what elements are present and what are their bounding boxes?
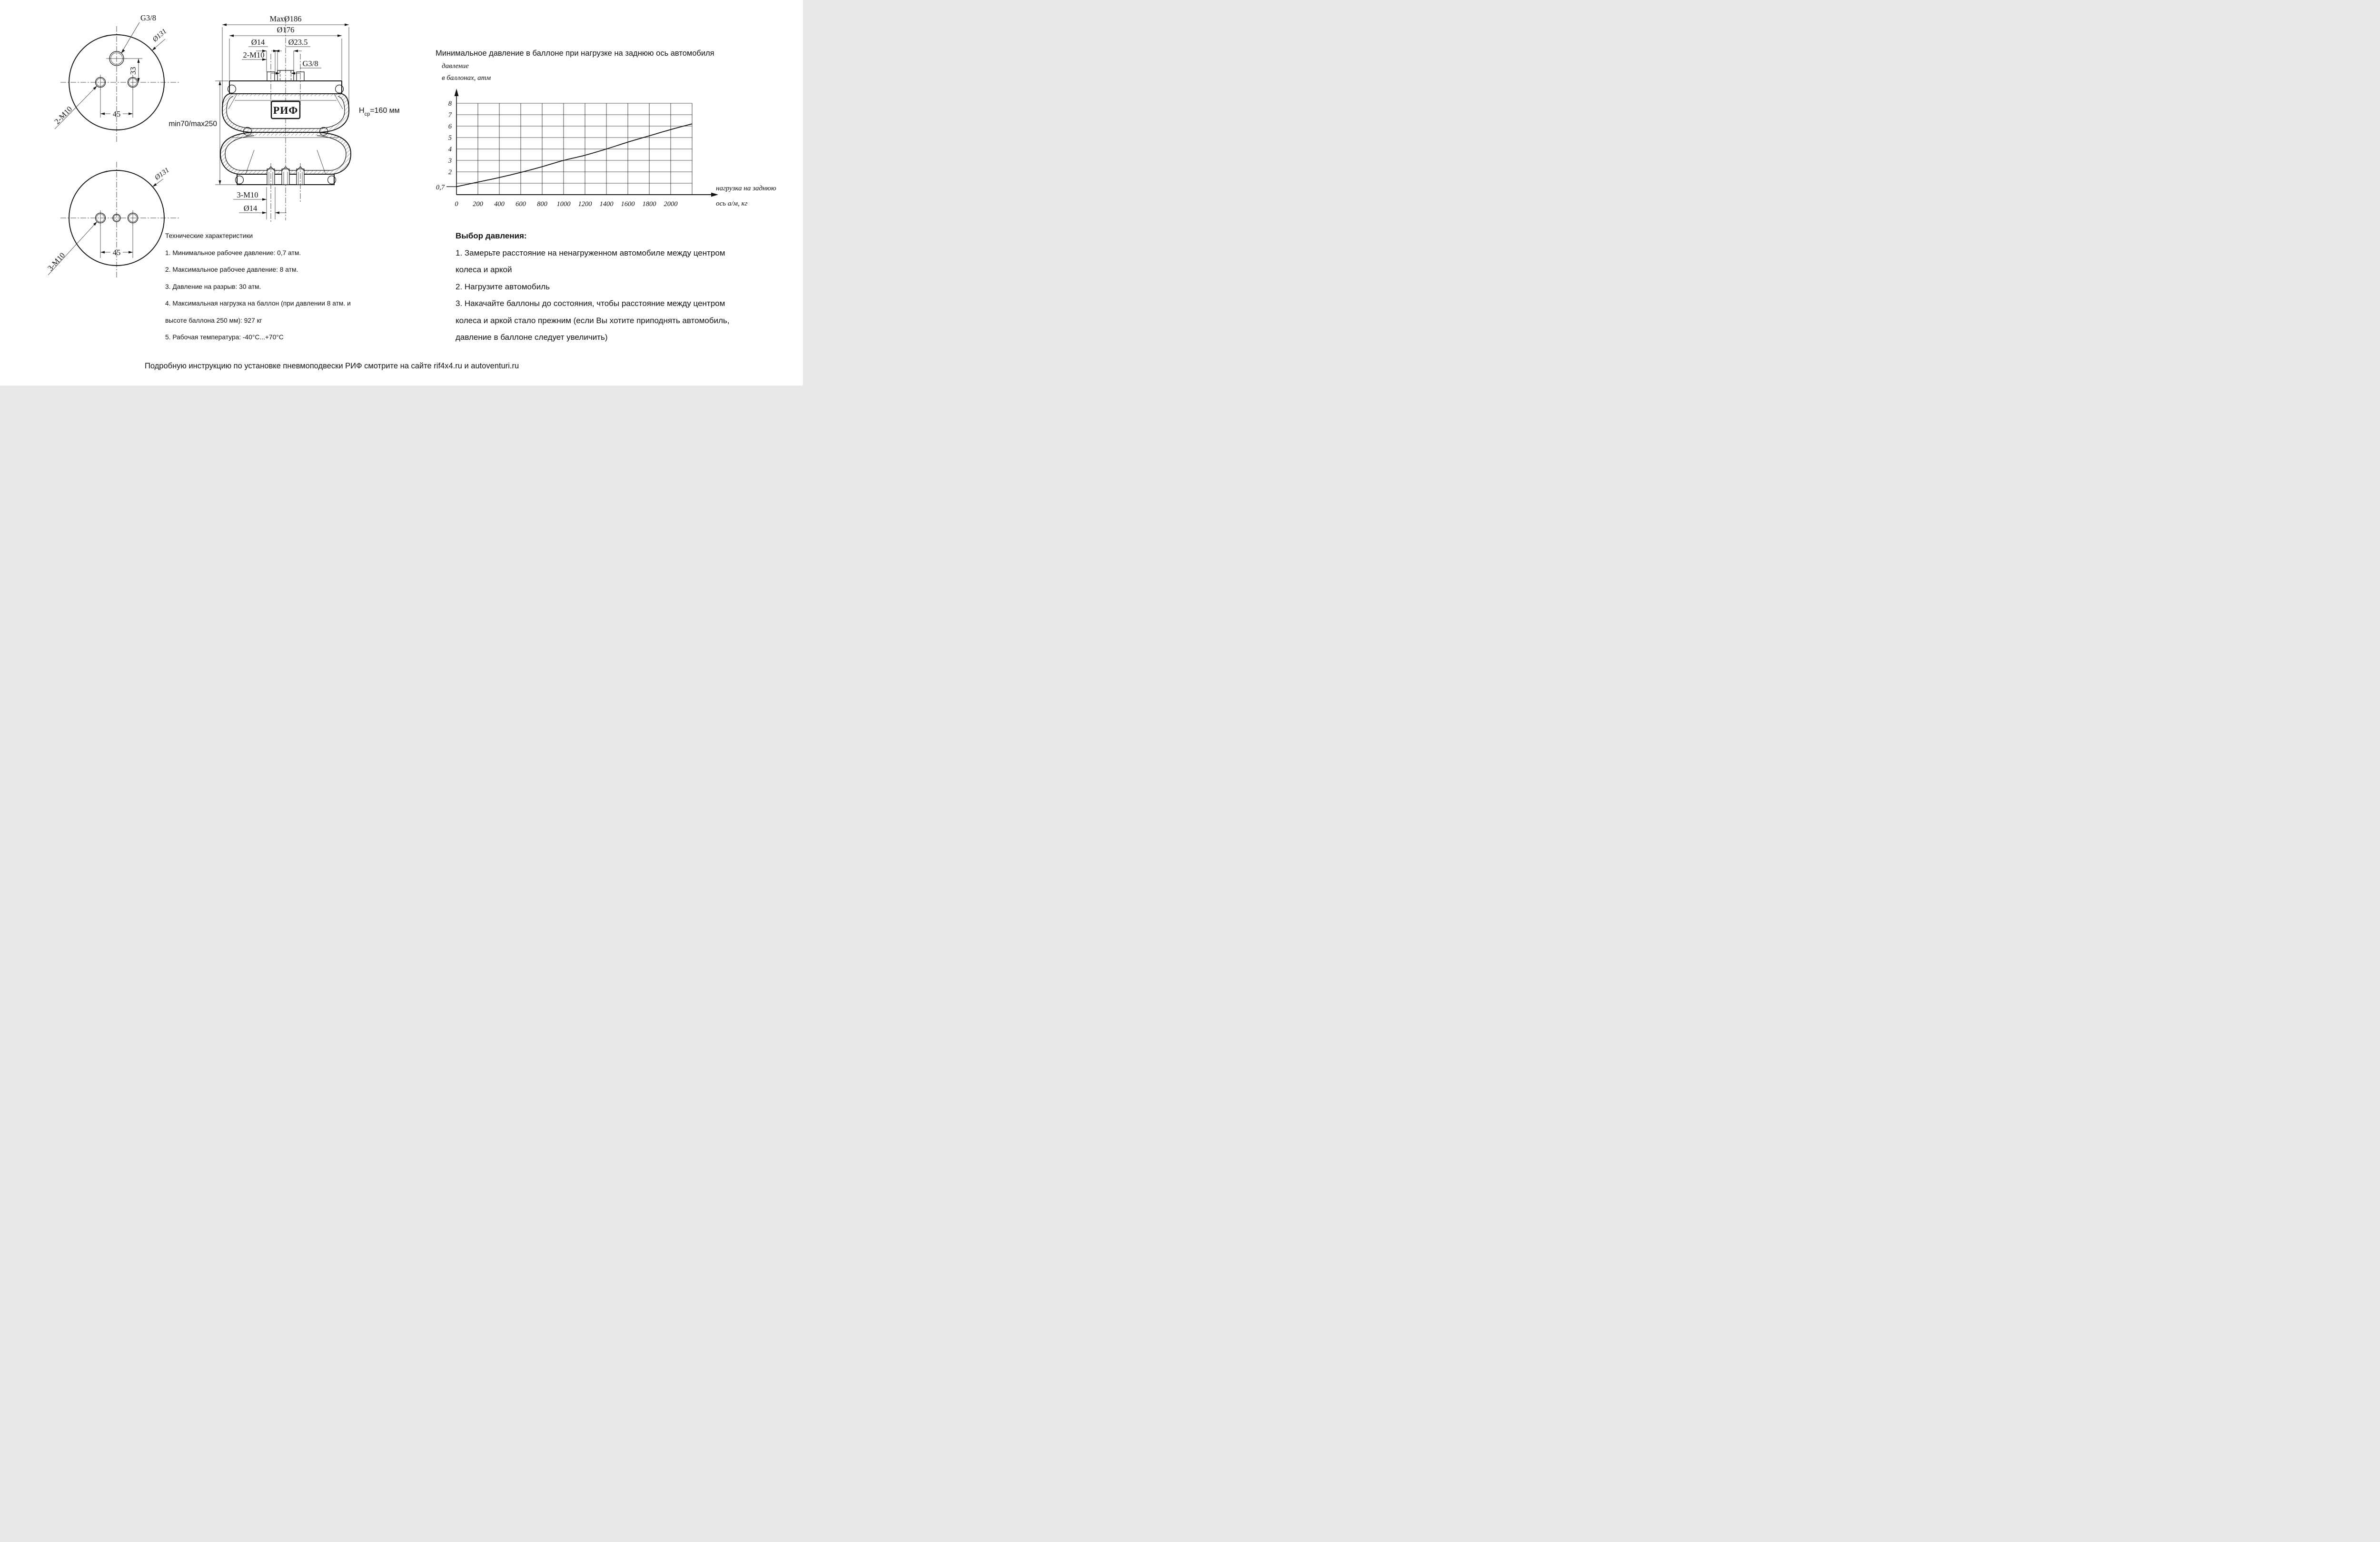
- pressure-selection-line: 2. Нагрузите автомобиль: [456, 278, 729, 296]
- y-axis-title-line: в баллонах, атм: [442, 74, 491, 82]
- bottom-view-holes-label: 3-М10: [46, 251, 67, 273]
- section-dim-235: Ø23.5: [288, 38, 308, 47]
- section-bottom-stud-dia: Ø14: [244, 204, 257, 213]
- x-axis-title-line: нагрузка на заднюю: [716, 185, 776, 192]
- x-tick-label: 1200: [578, 200, 593, 208]
- pressure-selection-line: 3. Накачайте баллоны до состояния, чтобы…: [456, 295, 729, 312]
- bottom-plate-lip-left: [236, 176, 244, 184]
- x-tick-label: 1800: [643, 200, 657, 208]
- pressure-selection-line: колеса и аркой стало прежним (если Вы хо…: [456, 312, 729, 329]
- top-plate-lip-right: [336, 85, 344, 93]
- tech-spec-line: высоте баллона 250 мм): 927 кг: [165, 312, 351, 329]
- y-axis-title-line: давление: [442, 62, 469, 70]
- y-tick-label: 4: [448, 146, 452, 153]
- pressure-selection-title: Выбор давления:: [456, 227, 729, 245]
- y-start-label: 0,7: [436, 184, 445, 191]
- tech-spec-line: 1. Минимальное рабочее давление: 0,7 атм…: [165, 245, 351, 262]
- tech-spec-line: 5. Рабочая температура: -40°С...+70°С: [165, 329, 351, 346]
- pressure-selection-line: давление в баллоне следует увеличить): [456, 329, 729, 346]
- tech-specs-block: Технические характеристики 1. Минимально…: [165, 227, 351, 346]
- chart-plot: 23456780,7020040060080010001200140016001…: [436, 62, 776, 208]
- top-plate-lip-left: [228, 85, 236, 93]
- bottom-plate-lip-right: [328, 176, 336, 184]
- section-thread-label: G3/8: [303, 59, 318, 68]
- top-view-dim-45: 45: [113, 109, 121, 119]
- y-tick-label: 3: [448, 157, 452, 165]
- x-axis-arrow: [711, 193, 718, 197]
- y-tick-label: 5: [448, 134, 452, 142]
- y-axis-arrow: [455, 89, 459, 96]
- x-tick-label: 1000: [557, 200, 571, 208]
- brand-logo: РИФ: [271, 101, 300, 119]
- pressure-selection-line: колеса и аркой: [456, 261, 729, 278]
- y-tick-label: 2: [448, 168, 452, 176]
- x-tick-label: 1400: [600, 200, 614, 208]
- top-view-dim-33: 33: [129, 67, 138, 75]
- section-view: MaxØ186 Ø176 Ø14 Ø23.5 2-М10: [157, 7, 414, 231]
- pressure-curve: [456, 124, 692, 187]
- section-dim-max186: MaxØ186: [270, 14, 302, 23]
- x-tick-label: 2000: [664, 200, 678, 208]
- section-height-range: min70/max250: [169, 120, 217, 128]
- section-dim-176: Ø176: [277, 25, 295, 34]
- top-view-thread-label: G3/8: [140, 13, 156, 22]
- pressure-selection-block: Выбор давления: 1. Замерьте расстояние н…: [456, 227, 729, 346]
- y-tick-label: 8: [448, 100, 452, 108]
- section-avg-height: Нср=160 мм: [359, 107, 400, 117]
- bottom-view-dim-45: 45: [113, 248, 121, 257]
- tech-specs-title: Технические характеристики: [165, 227, 351, 245]
- x-tick-label: 600: [516, 200, 526, 208]
- y-tick-label: 7: [448, 111, 452, 119]
- section-dim-14-top: Ø14: [251, 38, 265, 47]
- brand-logo-text: РИФ: [273, 104, 298, 116]
- x-tick-label: 1600: [621, 200, 635, 208]
- pressure-selection-line: 1. Замерьте расстояние на ненагруженном …: [456, 245, 729, 262]
- y-tick-label: 6: [448, 123, 452, 130]
- x-axis-title-line: ось а/м, кг: [716, 200, 747, 208]
- tech-spec-line: 4. Максимальная нагрузка на баллон (при …: [165, 295, 351, 312]
- tech-spec-line: 3. Давление на разрыв: 30 атм.: [165, 278, 351, 296]
- top-view-holes-label: 2-М10: [52, 104, 74, 126]
- section-bottom-studs-label: 3-М10: [237, 190, 258, 199]
- footer-note: Подробную инструкцию по установке пневмо…: [145, 362, 519, 371]
- bolt-hole-right: [128, 210, 138, 226]
- bottom-boss-center: [282, 167, 289, 185]
- x-tick-label: 200: [473, 200, 484, 208]
- x-tick-label: 800: [537, 200, 548, 208]
- bolt-hole-right: [128, 75, 138, 90]
- x-tick-label: 0: [455, 200, 458, 208]
- pressure-chart-svg: 23456780,7020040060080010001200140016001…: [428, 48, 795, 228]
- tech-spec-line: 2. Максимальное рабочее давление: 8 атм.: [165, 261, 351, 278]
- page-root: G3/8 33 45 Ø131 2-М10: [0, 0, 803, 385]
- section-studs-label: 2-М10: [243, 50, 265, 59]
- x-tick-label: 400: [494, 200, 505, 208]
